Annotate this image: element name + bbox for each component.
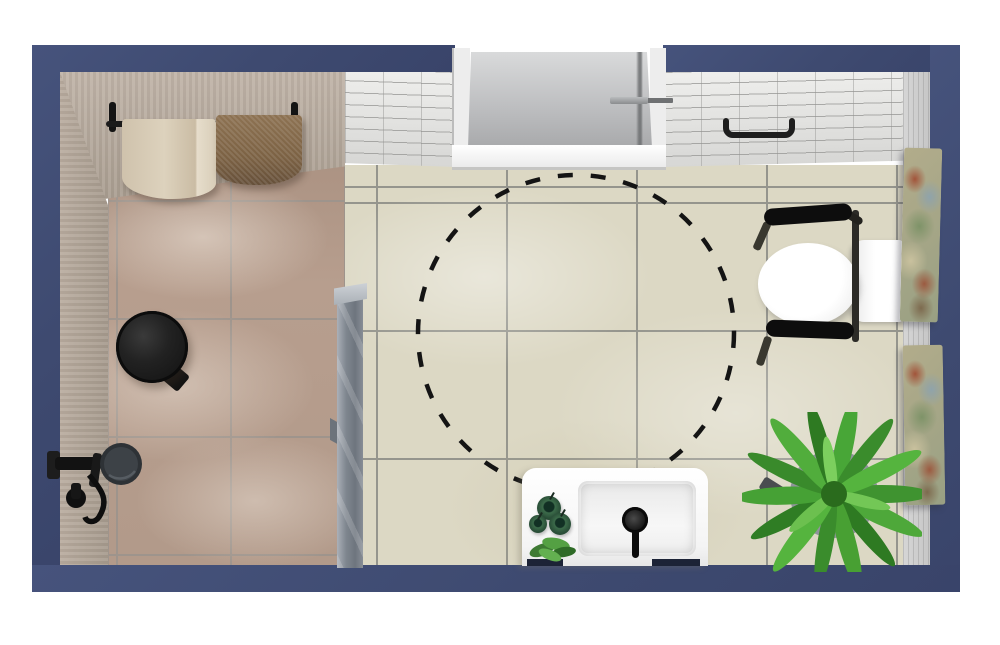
towel-cream[interactable] [122, 119, 216, 199]
towel-brown[interactable] [216, 115, 302, 185]
counter-plant[interactable] [528, 532, 578, 564]
counter-shadow [652, 559, 700, 566]
toilet[interactable] [758, 243, 858, 325]
toilet-cistern [852, 240, 903, 322]
toilet-grab-rail-bottom[interactable] [766, 319, 855, 339]
shower-knob-stem [71, 483, 81, 499]
floorplan-canvas [0, 0, 1000, 645]
shower-mixer-set[interactable] [45, 425, 160, 535]
candle-jar[interactable] [529, 515, 547, 533]
fern-plant[interactable] [742, 412, 922, 572]
basin-faucet-base [622, 507, 648, 533]
wall-artwork-upper[interactable] [900, 148, 943, 323]
fern-fronds [742, 412, 922, 572]
basin-faucet[interactable] [632, 531, 639, 558]
glass-partition[interactable] [337, 289, 363, 568]
wall-grab-rail[interactable] [720, 118, 802, 144]
toilet-rail-frame [852, 210, 859, 342]
shower-hose [85, 475, 104, 522]
stool[interactable] [116, 311, 188, 383]
towel-rail-post [109, 102, 116, 132]
turning-circle-stroke [418, 175, 734, 491]
